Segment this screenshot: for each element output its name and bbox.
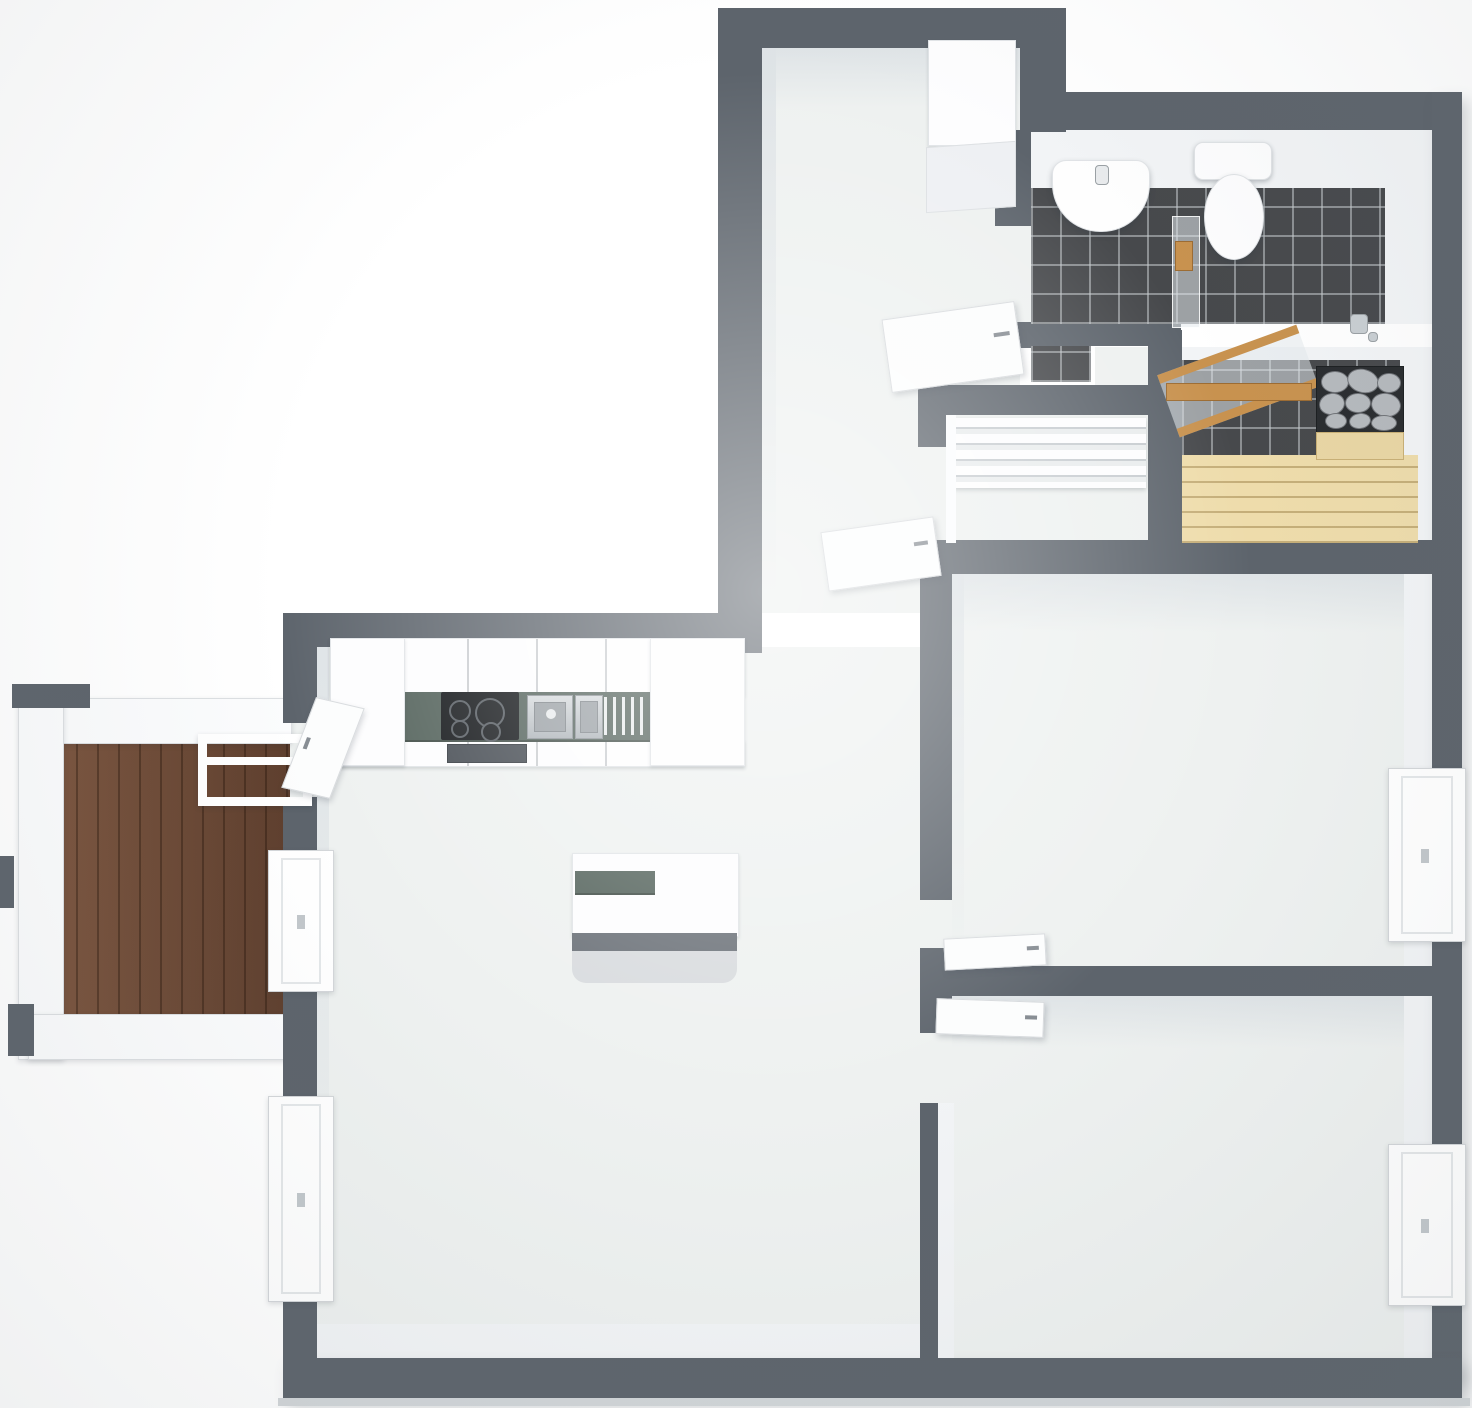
hallway-west-wall-face (762, 48, 776, 613)
burner (451, 720, 469, 738)
heater-stone (1321, 371, 1349, 393)
kitchen-island-skirt (572, 951, 737, 983)
door-bedroom-bottom (935, 998, 1044, 1038)
kitchen-island (572, 853, 739, 937)
door-handle (1025, 1015, 1037, 1019)
oven-slot (447, 744, 527, 763)
heater-stone (1377, 373, 1401, 393)
wall-outer-bottom-skirt (278, 1398, 1470, 1406)
sink-basin (580, 701, 598, 733)
bedroom-bottom-west-jamb (938, 1103, 954, 1358)
kitchen-sink-small (575, 695, 603, 739)
wall-balcony-stub-top (12, 684, 90, 708)
floor-bathroom-shower-nook (1031, 346, 1091, 382)
heater-stone (1325, 413, 1347, 429)
kitchen-island-band (572, 933, 737, 953)
window-living-lower-left (268, 1096, 334, 1302)
doorway-bedroom-bottom (920, 1033, 952, 1103)
shower-glass-screen (1172, 216, 1200, 328)
sink-faucet-icon (1095, 165, 1109, 185)
door-handle (993, 331, 1009, 337)
sauna-heater-front (1316, 432, 1404, 460)
floor-plan-3d: 3D apartment floor plan — top-down dollh… (0, 0, 1472, 1408)
kitchen-tall-cabinet (650, 638, 745, 766)
wall-balcony-outer-left (0, 856, 14, 908)
heater-stone (1345, 393, 1371, 413)
sauna-heater (1316, 366, 1404, 434)
floor-drain (1350, 314, 1368, 334)
sauna-door-threshold (1166, 383, 1312, 401)
window-handle (297, 915, 305, 929)
burner (449, 700, 471, 722)
wall-between-bedrooms (935, 966, 1462, 996)
entry-wardrobe-lower (926, 141, 1016, 213)
wall-hallway-left (718, 8, 762, 653)
window-handle (297, 1193, 305, 1207)
window-bedroom-top (1388, 768, 1466, 942)
burner (481, 722, 501, 742)
floor-bedroom-top (952, 574, 1404, 966)
floor-bedroom-bottom (952, 996, 1404, 1358)
kitchen-island-counter (575, 871, 655, 895)
heater-stone (1371, 415, 1397, 431)
door-bedroom-top (943, 933, 1047, 970)
floor-drain-dot (1368, 332, 1378, 342)
window-handle (1421, 1219, 1429, 1233)
wall-outer-bottom (283, 1358, 1462, 1400)
window-living-upper-left (268, 850, 334, 992)
shower-screen-handle (1175, 241, 1193, 271)
wall-living-west-c (283, 982, 317, 1104)
bedroom-top-west-face (952, 574, 964, 966)
closet-shelving-unit (954, 418, 1146, 488)
wall-divider-a (920, 574, 952, 900)
window-handle (1421, 849, 1429, 863)
bathroom-east-wall-face (1385, 188, 1432, 324)
dish-drying-rack (604, 697, 646, 735)
wall-closet-north (918, 385, 1182, 415)
wall-sauna-west (1148, 330, 1182, 574)
window-bedroom-bottom (1388, 1144, 1466, 1306)
door-handle (1027, 946, 1039, 951)
balcony-railing-bottom (28, 1014, 292, 1060)
kitchen-faucet-icon (545, 708, 557, 720)
closet-shelf-side (946, 415, 956, 543)
rack-rung (207, 757, 303, 765)
wall-bathroom-top (1020, 92, 1462, 130)
wall-balcony-stub-bottom (8, 1004, 34, 1056)
door-handle (303, 737, 311, 749)
toilet-bowl (1204, 174, 1264, 260)
entry-wardrobe (928, 40, 1016, 146)
heater-stone (1348, 412, 1372, 431)
cooktop (441, 692, 519, 740)
kitchen-sink-main (527, 695, 573, 739)
sauna-benches (1182, 455, 1418, 543)
wall-bedrooms-north (918, 540, 1462, 574)
wall-living-west-d (283, 1292, 317, 1360)
door-handle (914, 540, 928, 546)
bedroom-top-north-face (952, 574, 1404, 632)
heater-stone (1344, 365, 1381, 396)
